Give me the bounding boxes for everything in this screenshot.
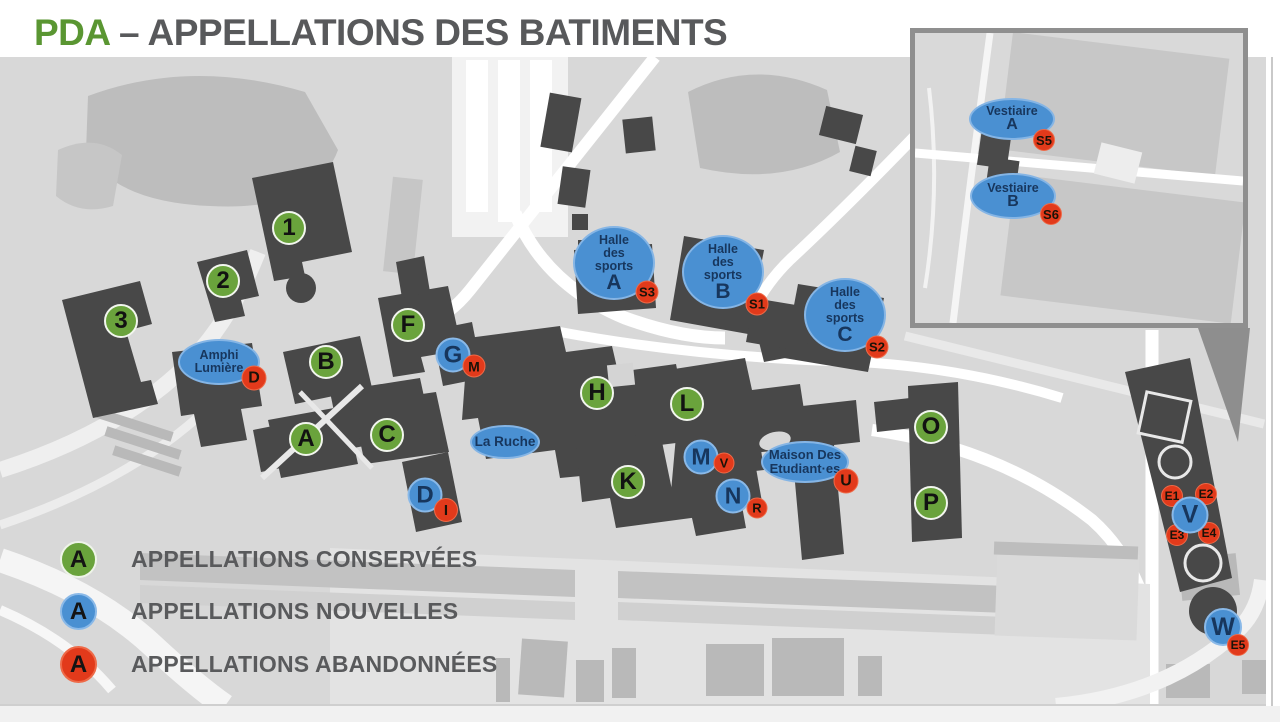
marker-blue-N: N xyxy=(716,479,751,514)
legend-red-circle: A xyxy=(60,646,97,683)
marker-blue-V: V xyxy=(1172,497,1209,534)
legend-green-circle: A xyxy=(60,541,97,578)
marker-green-K: K xyxy=(611,465,645,499)
marker-red-V: V xyxy=(714,453,735,474)
slide: AmphiLumièreLa RucheHalledessportsAHalle… xyxy=(0,0,1280,722)
legend-label-conservees: APPELLATIONS CONSERVÉES xyxy=(131,546,477,573)
marker-red-S5: S5 xyxy=(1033,129,1055,151)
marker-red-R: R xyxy=(747,498,768,519)
marker-green-A: A xyxy=(289,422,323,456)
marker-red-S3: S3 xyxy=(636,281,659,304)
marker-red-S2: S2 xyxy=(866,336,889,359)
marker-red-U: U xyxy=(834,469,859,494)
marker-green-C: C xyxy=(370,418,404,452)
marker-red-M: M xyxy=(463,355,486,378)
page-title: PDA – APPELLATIONS DES BATIMENTS xyxy=(34,12,727,54)
marker-green-O: O xyxy=(914,410,948,444)
legend-item-nouvelles: A APPELLATIONS NOUVELLES xyxy=(60,593,458,630)
marker-red-S6: S6 xyxy=(1040,203,1062,225)
title-text: – APPELLATIONS DES BATIMENTS xyxy=(119,12,727,53)
legend-blue-circle: A xyxy=(60,593,97,630)
marker-green-P: P xyxy=(914,486,948,520)
marker-green-2: 2 xyxy=(206,264,240,298)
marker-la-ruche: La Ruche xyxy=(470,425,540,459)
legend-item-abandonnees: A APPELLATIONS ABANDONNÉES xyxy=(60,646,497,683)
marker-red-D: D xyxy=(242,366,267,391)
marker-red-I: I xyxy=(434,498,458,522)
marker-blue-M: M xyxy=(684,440,719,475)
marker-green-L: L xyxy=(670,387,704,421)
marker-green-F: F xyxy=(391,308,425,342)
legend-label-nouvelles: APPELLATIONS NOUVELLES xyxy=(131,598,458,625)
legend-item-conservees: A APPELLATIONS CONSERVÉES xyxy=(60,541,477,578)
marker-green-B: B xyxy=(309,345,343,379)
marker-red-S1: S1 xyxy=(746,293,769,316)
legend-label-abandonnees: APPELLATIONS ABANDONNÉES xyxy=(131,651,497,678)
marker-green-H: H xyxy=(580,376,614,410)
marker-green-3: 3 xyxy=(104,304,138,338)
marker-red-E5: E5 xyxy=(1227,634,1249,656)
title-prefix: PDA xyxy=(34,12,109,53)
marker-green-1: 1 xyxy=(272,211,306,245)
